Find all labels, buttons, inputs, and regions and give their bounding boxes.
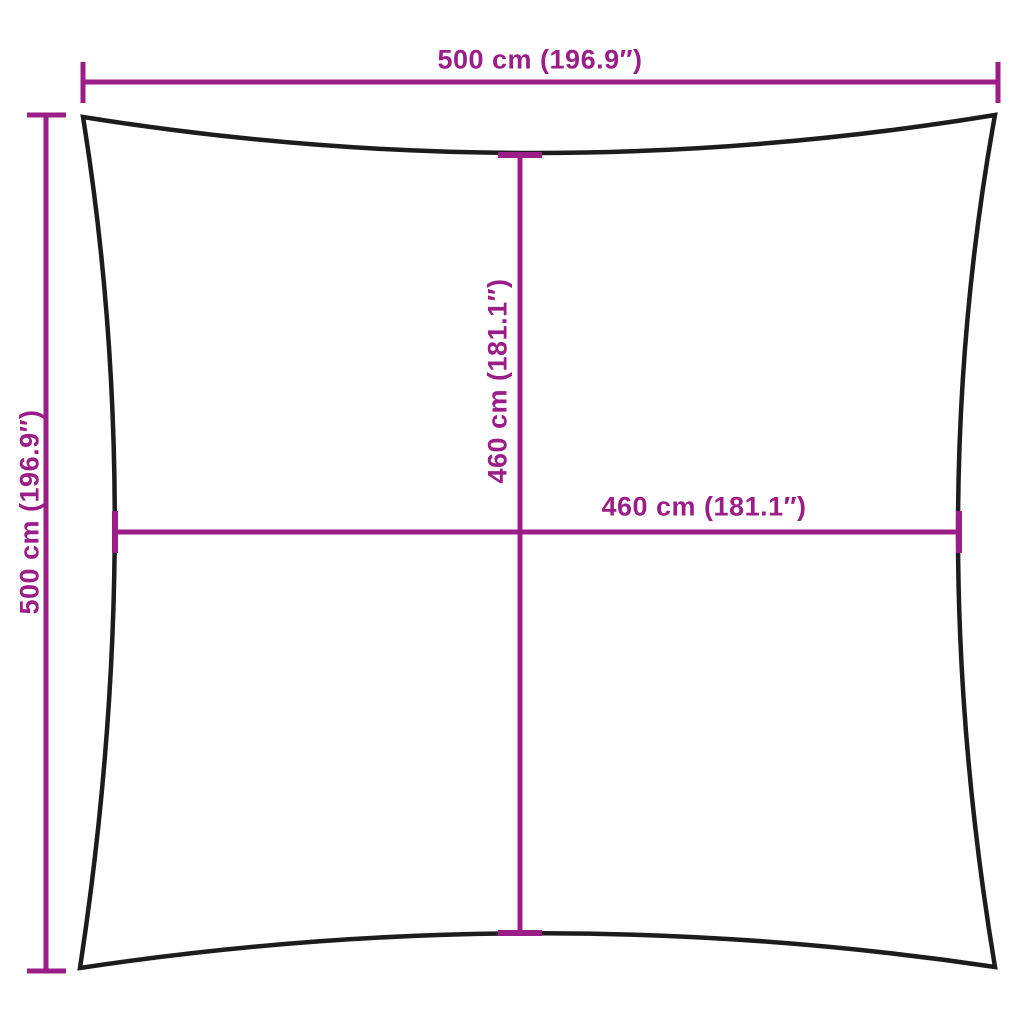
dimension-label-outer-width: 500 cm (196.9″)	[437, 45, 642, 76]
dimension-label-outer-height: 500 cm (196.9″)	[15, 409, 46, 614]
diagram-graphics	[0, 0, 1024, 1024]
dimension-label-inner-height: 460 cm (181.1″)	[483, 278, 514, 483]
shade-sail-outline	[80, 115, 995, 968]
dimension-diagram: 500 cm (196.9″) 500 cm (196.9″) 460 cm (…	[0, 0, 1024, 1024]
dimension-label-inner-width: 460 cm (181.1″)	[601, 492, 806, 523]
